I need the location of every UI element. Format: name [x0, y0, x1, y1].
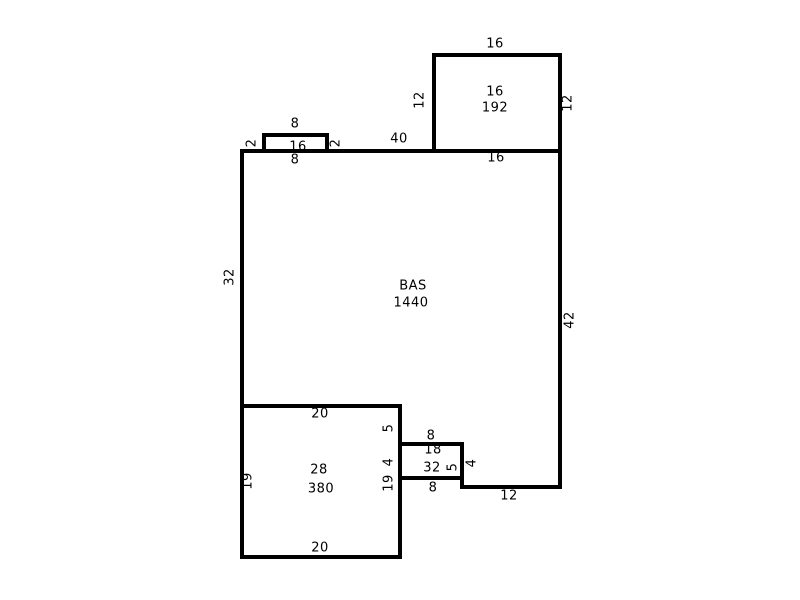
addition-top-wall [240, 404, 402, 408]
dim-main-top: 40 [390, 133, 408, 146]
stoop-area: 32 [423, 462, 441, 475]
dim-main-right: 42 [564, 311, 577, 329]
porch-code: 16 [486, 86, 504, 99]
dim-bump-top: 8 [291, 118, 300, 131]
porch-left-wall [432, 53, 436, 153]
main-area-label: BAS [399, 280, 427, 293]
dim-addition-top: 20 [311, 408, 329, 421]
dim-bump-right: 2 [330, 139, 343, 148]
dim-addition-bottom: 20 [311, 542, 329, 555]
dim-stoop-left: 4 [383, 458, 396, 467]
stoop-right-wall [460, 442, 464, 489]
stoop-bottom-wall [398, 476, 464, 480]
addition-code: 28 [310, 464, 328, 477]
addition-area: 380 [308, 483, 334, 496]
addition-bottom-wall [240, 555, 402, 559]
dim-bump-bottom: 8 [291, 154, 300, 167]
addition-right-wall [398, 404, 402, 559]
floorplan-sketch-canvas: 16121216192168221684032BAS14404220581832… [0, 0, 800, 600]
main-top-wall [240, 149, 562, 153]
main-area-value: 1440 [393, 297, 428, 310]
dim-bump-left: 2 [246, 139, 259, 148]
dim-stoop-bottom: 8 [429, 482, 438, 495]
dim-porch-top: 16 [486, 38, 504, 51]
porch-area: 192 [482, 102, 508, 115]
dim-main-bottom: 12 [500, 490, 518, 503]
main-left-wall [240, 149, 244, 559]
dim-main-left: 32 [224, 268, 237, 286]
dim-porch-bottom: 16 [487, 152, 505, 165]
dim-addition-right-upper: 5 [383, 424, 396, 433]
dim-porch-left: 12 [414, 91, 427, 109]
dim-addition-right: 19 [383, 474, 396, 492]
stoop-top-wall [398, 442, 464, 446]
dim-stoop-inner: 5 [447, 463, 460, 472]
main-bottom-wall [460, 485, 562, 489]
dim-porch-right: 12 [562, 94, 575, 112]
main-right-wall [558, 149, 562, 489]
bump-top-wall [262, 133, 329, 137]
porch-right-wall [558, 53, 562, 153]
porch-top-wall [432, 53, 562, 57]
dim-stoop-right: 4 [466, 459, 479, 468]
dim-stoop-top: 8 [427, 430, 436, 443]
